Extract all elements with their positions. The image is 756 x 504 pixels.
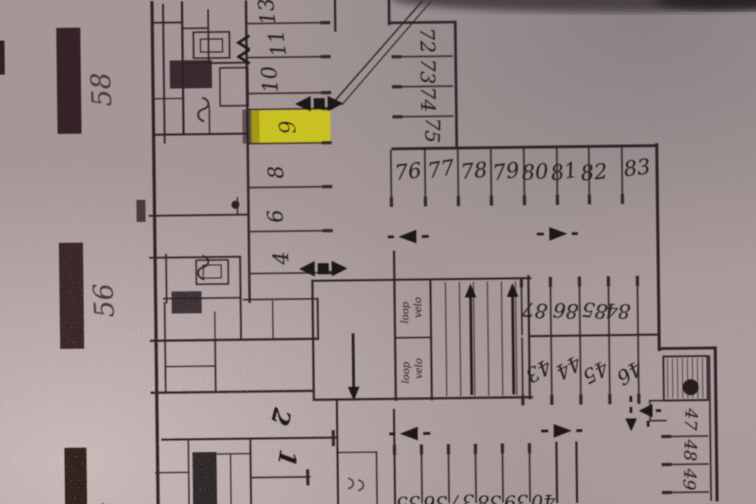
floor-plan-svg: 5856541311109864727374757677787980818283…	[0, 0, 756, 504]
scanned-floor-plan-image: 5856541311109864727374757677787980818283…	[0, 0, 756, 504]
grain-light	[0, 0, 756, 504]
